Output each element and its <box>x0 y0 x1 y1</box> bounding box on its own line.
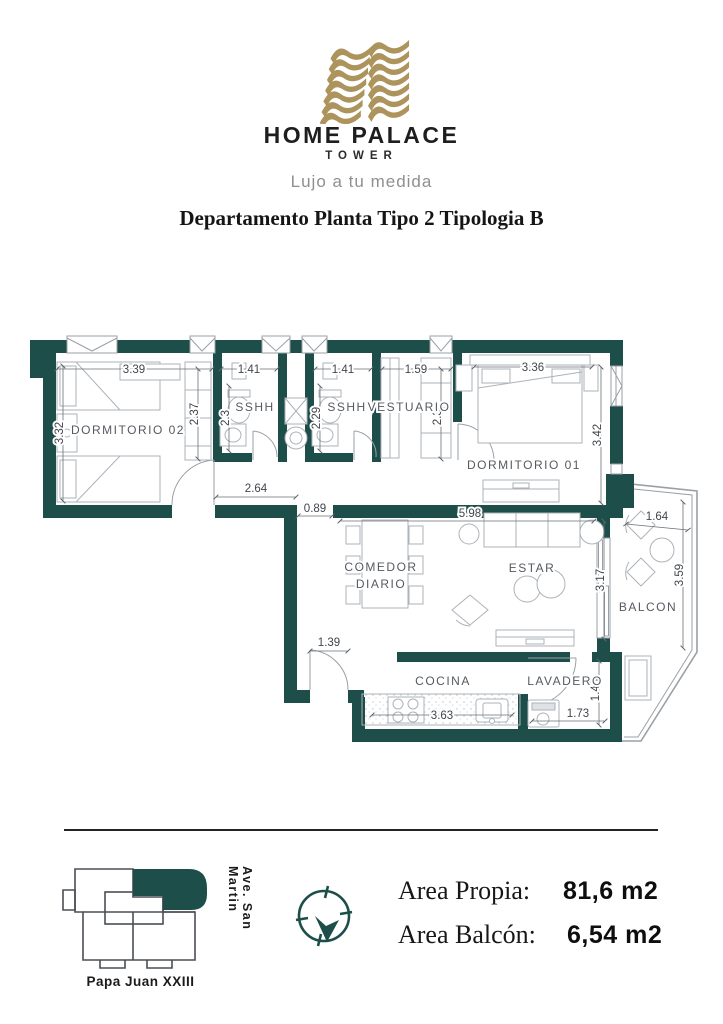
label-dormitorio-01: DORMITORIO 01 <box>467 458 581 472</box>
dim-332: 3.32 <box>54 422 66 444</box>
label-diario: DIARIO <box>356 577 406 591</box>
dim-141b: 1.41 <box>332 364 354 376</box>
area-balcon-label: Area Balcón: <box>398 920 536 954</box>
footer-divider <box>64 829 658 831</box>
dim-359: 3.59 <box>674 564 686 586</box>
dim-164: 1.64 <box>646 511 669 523</box>
dim-229: 2.29 <box>311 407 323 429</box>
compass-icon <box>294 884 356 950</box>
label-sshh-1: SSHH <box>235 400 274 414</box>
floor-plan: 3.39 1.41 1.41 1.59 3.36 3.32 2.37 2.3 2… <box>0 330 723 755</box>
dim-264: 2.64 <box>245 483 268 495</box>
area-propia-value: 81,6 m2 <box>563 877 658 911</box>
brand-name: HOME PALACE <box>0 122 723 149</box>
street-label-right: Ave. San Martin <box>226 866 254 974</box>
street-label-bottom: Papa Juan XXIII <box>48 974 233 989</box>
dim-598: 5.98 <box>459 508 481 520</box>
dim-23: 2.3 <box>220 410 232 426</box>
dim-317: 3.17 <box>595 569 607 591</box>
dim-339: 3.39 <box>123 364 145 376</box>
label-balcon: BALCON <box>619 600 677 614</box>
label-estar: ESTAR <box>509 561 556 575</box>
dim-139: 1.39 <box>318 637 340 649</box>
label-lavadero: LAVADERO <box>527 674 603 688</box>
dim-159: 1.59 <box>405 364 427 376</box>
dim-237a: 2.37 <box>189 403 201 425</box>
home-palace-logo-icon <box>318 36 418 124</box>
dim-342: 3.42 <box>592 424 604 446</box>
label-sshh-2: SSHH <box>327 400 366 414</box>
dim-141a: 1.41 <box>238 364 260 376</box>
dim-089: 0.89 <box>304 503 326 515</box>
brand-tagline: Lujo a tu medida <box>0 172 723 192</box>
label-vestuario: VESTUARIO <box>368 400 451 414</box>
dim-363: 3.63 <box>431 710 453 722</box>
label-comedor: COMEDOR <box>344 560 417 574</box>
page-title: Departamento Planta Tipo 2 Tipologia B <box>0 206 723 231</box>
label-dormitorio-02: DORMITORIO 02 <box>71 423 185 437</box>
site-plan-icon <box>55 852 225 974</box>
area-propia-label: Area Propia: <box>398 876 530 910</box>
area-balcon-value: 6,54 m2 <box>567 921 662 955</box>
label-cocina: COCINA <box>415 674 471 688</box>
dim-173: 1.73 <box>567 708 589 720</box>
highlighted-unit <box>133 869 207 910</box>
brand-subtitle: TOWER <box>0 150 723 162</box>
dim-336: 3.36 <box>522 362 544 374</box>
